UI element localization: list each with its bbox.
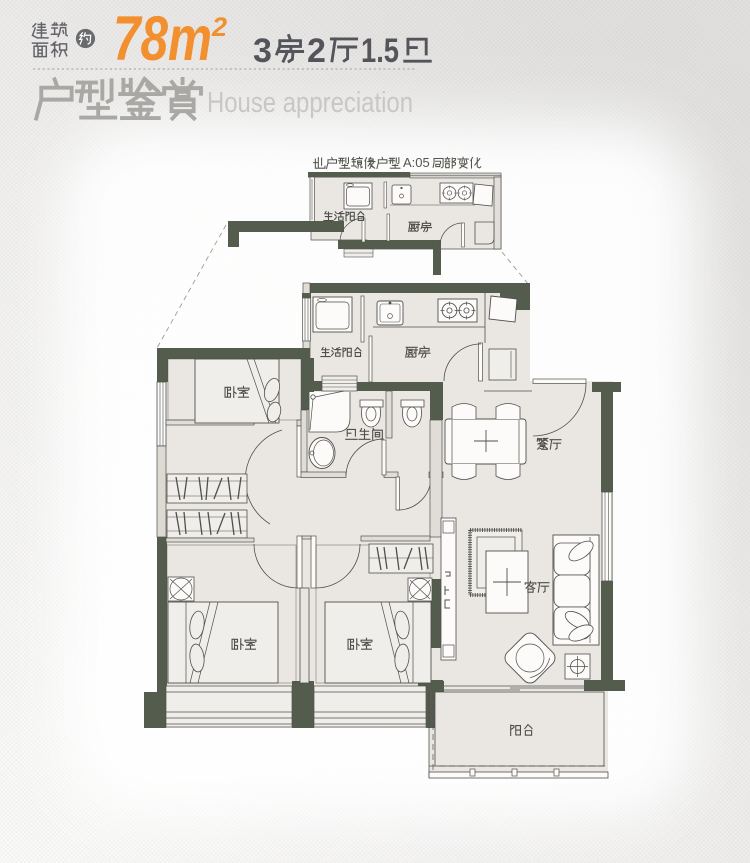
svg-text:3: 3 bbox=[253, 32, 272, 70]
svg-text:House appreciation: House appreciation bbox=[207, 87, 413, 119]
svg-text:1.5: 1.5 bbox=[361, 32, 399, 70]
svg-text:2: 2 bbox=[307, 32, 326, 70]
svg-text:78m: 78m bbox=[113, 4, 212, 74]
svg-text:A:05: A:05 bbox=[403, 155, 430, 170]
svg-text:2: 2 bbox=[211, 12, 227, 42]
